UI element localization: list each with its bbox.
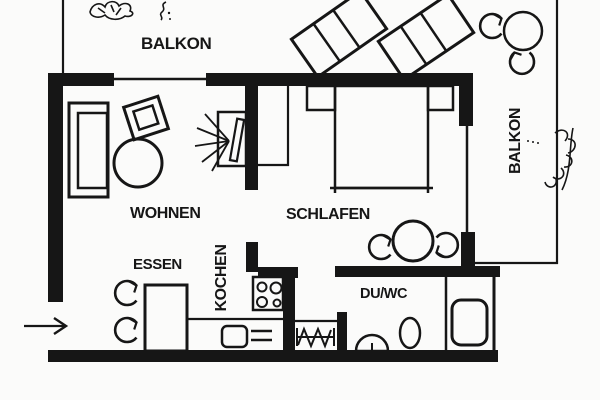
chair-arrow-icon [115,281,136,305]
balcony-table-icon [504,12,542,50]
wardrobe-icon [258,86,289,166]
deck-chair-icon [291,0,386,77]
label-balcony-top: BALKON [141,35,211,52]
wall-bath-top [335,266,500,277]
wall-kitchen-bath [283,271,295,352]
sofa-icon [69,103,108,197]
chair-arrow-icon [480,14,501,38]
label-balcony-right: BALKON [508,108,524,174]
washbasin-icon [356,335,388,351]
dining-table-icon [145,285,187,351]
radiator-icon [297,328,334,346]
wall-kitchen-stub [246,242,258,272]
label-living-room: WOHNEN [130,206,200,222]
wall-right-upper [459,85,473,126]
label-dining: ESSEN [133,257,182,272]
wall-niche-stub [337,312,347,352]
bedroom-table-icon [393,221,433,261]
toilet-icon [400,318,420,348]
floor-plan-drawing [0,0,600,400]
chair-arrow-icon [115,318,136,342]
deck-chair-icon [378,0,473,80]
plant-icon [161,2,171,20]
label-bedroom: SCHLAFEN [286,207,370,223]
chair-arrow-icon [437,233,458,257]
nightstand-right-icon [428,86,453,110]
label-kitchen: KOCHEN [214,245,230,312]
shower-icon [452,300,487,345]
coffee-table-icon [114,139,162,187]
stove-icon [253,277,283,310]
sink-icon [222,326,272,347]
plant-icon [90,2,133,20]
tv-rays-icon [195,114,229,171]
entrance-arrow-icon [24,318,66,334]
double-bed-icon [330,86,433,193]
label-bathroom: DU/WC [360,287,407,302]
armchair-icon [124,96,169,139]
wall-left [48,73,63,302]
floor-plan: BALKON BALKON WOHNEN SCHLAFEN ESSEN KOCH… [0,0,600,400]
wall-right-lower-stub [461,232,475,272]
chair-arrow-icon [369,235,390,259]
wall-bottom [48,350,498,362]
nightstand-left-icon [307,86,335,110]
plant-icon [527,128,575,190]
chair-arrow-icon [510,53,534,74]
